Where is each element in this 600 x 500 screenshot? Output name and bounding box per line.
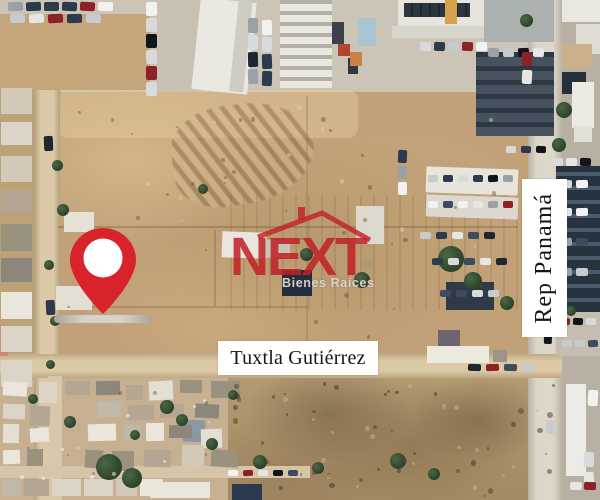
- car: [398, 166, 408, 179]
- car: [398, 150, 408, 163]
- terrain-speckle: [146, 182, 150, 186]
- street-label-rep-panama: Rep Panamá: [522, 179, 567, 337]
- car: [473, 175, 483, 182]
- satellite-map-image: NEXT ® Bienes Raíces Tuxtla Gutiérrez Re…: [0, 0, 600, 500]
- street-label-text: Tuxtla Gutiérrez: [230, 347, 365, 370]
- terrain-speckle: [314, 320, 317, 323]
- location-pin-icon: [66, 226, 140, 318]
- building: [426, 166, 519, 195]
- vacant-scrub-lot: [228, 376, 562, 500]
- car: [398, 182, 407, 195]
- next-bienes-raices-watermark: NEXT ® Bienes Raíces: [224, 206, 380, 298]
- residential-strip-left: [0, 74, 34, 376]
- terrain-speckle: [340, 179, 345, 184]
- terrain-speckle: [166, 193, 169, 196]
- car: [428, 175, 438, 183]
- street-label-tuxtla-gutierrez: Tuxtla Gutiérrez: [218, 341, 378, 375]
- residential-street-vertical: [48, 376, 62, 500]
- brand-tagline: Bienes Raíces: [282, 276, 375, 290]
- residential-street-horizontal: [0, 466, 310, 478]
- lot-boundary-line: [214, 230, 216, 306]
- terrain-speckle: [179, 196, 182, 199]
- car: [488, 175, 498, 182]
- terrain-speckle: [489, 118, 493, 122]
- terrain-speckle: [205, 249, 207, 251]
- registered-mark: ®: [362, 256, 373, 273]
- industrial-parking-area: [0, 0, 600, 92]
- car: [443, 175, 453, 182]
- car: [503, 175, 513, 182]
- street-label-text: Rep Panamá: [531, 193, 558, 324]
- building: [438, 330, 460, 356]
- terrain-speckle: [136, 216, 139, 219]
- car: [458, 175, 468, 182]
- terrain-speckle: [181, 220, 183, 222]
- terrain-speckle: [368, 185, 373, 190]
- terrain-speckle: [367, 335, 370, 338]
- car: [506, 146, 516, 153]
- terrain-speckle: [361, 154, 364, 157]
